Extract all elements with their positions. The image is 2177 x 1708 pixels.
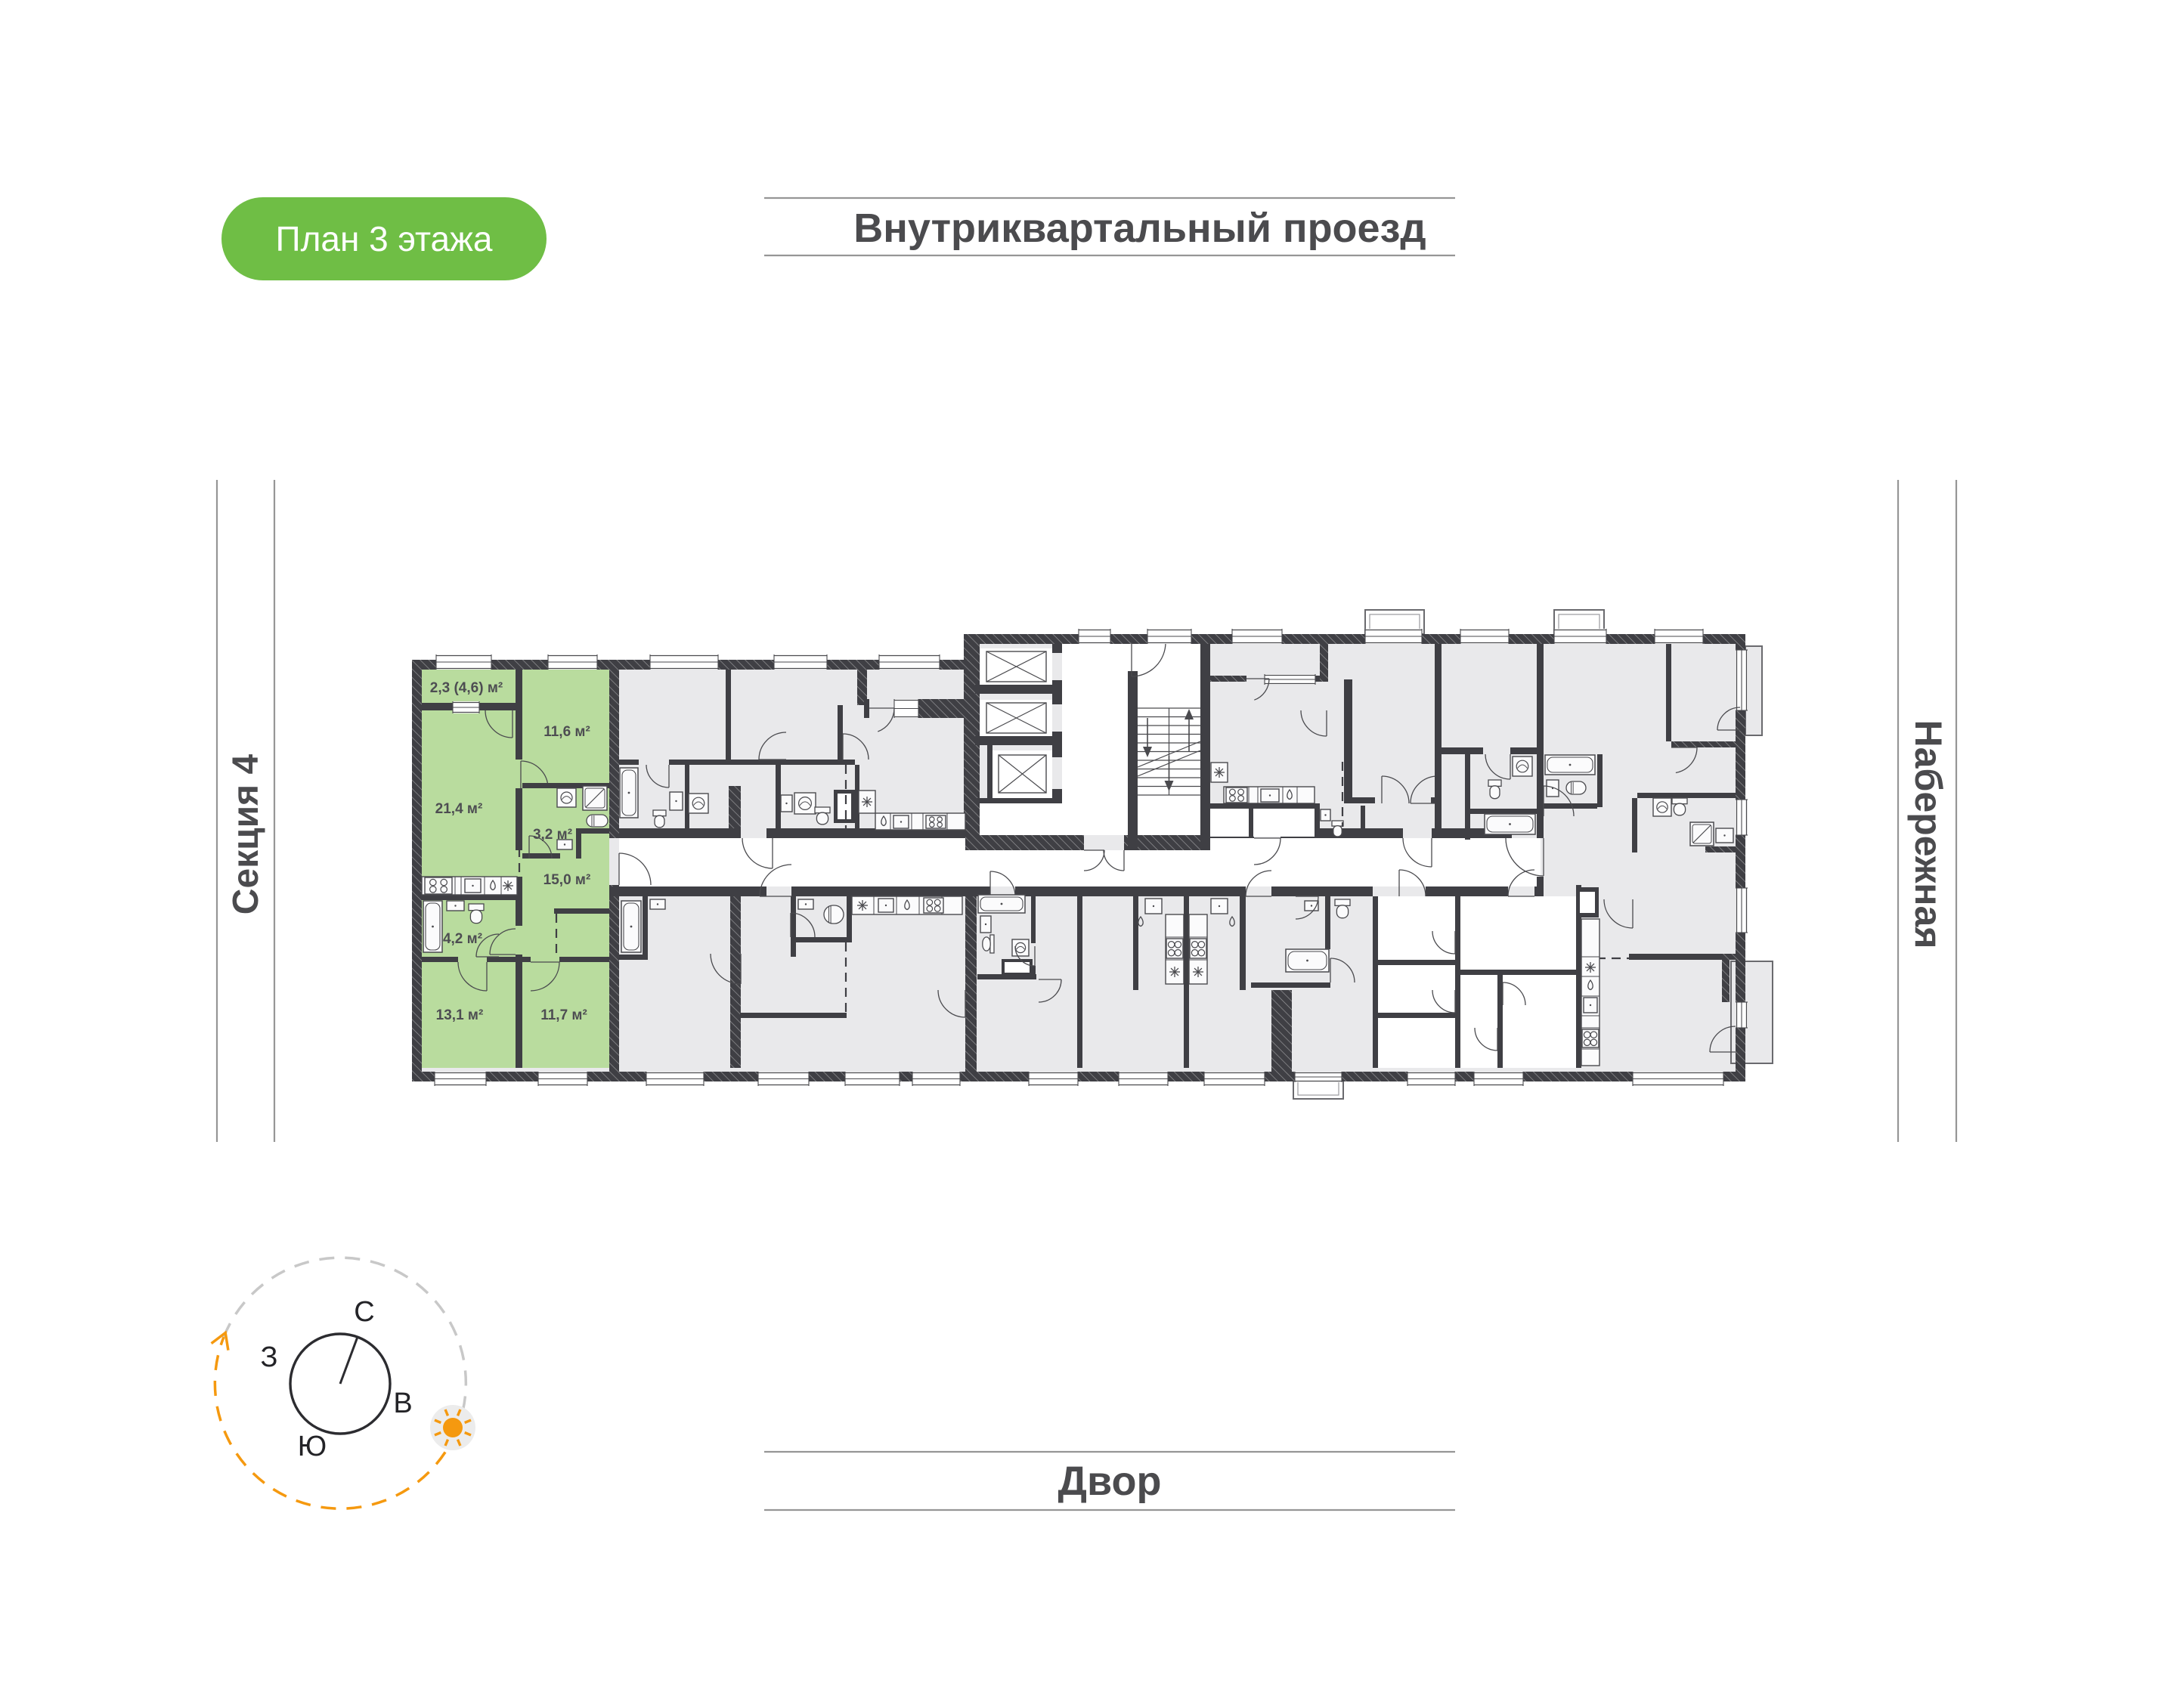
svg-text:13,1 м²: 13,1 м² <box>436 1007 484 1023</box>
svg-text:Ю: Ю <box>298 1431 327 1462</box>
svg-text:11,6 м²: 11,6 м² <box>543 724 590 740</box>
svg-text:4,2 м²: 4,2 м² <box>443 931 482 947</box>
svg-text:План 3 этажа: План 3 этажа <box>276 219 493 258</box>
svg-text:Набережная: Набережная <box>1907 720 1949 949</box>
svg-text:11,7 м²: 11,7 м² <box>540 1007 587 1023</box>
svg-text:3,2 м²: 3,2 м² <box>533 827 572 843</box>
svg-text:21,4 м²: 21,4 м² <box>435 801 483 817</box>
svg-text:Секция 4: Секция 4 <box>226 753 266 914</box>
svg-text:В: В <box>393 1388 412 1419</box>
svg-text:15,0 м²: 15,0 м² <box>543 872 591 888</box>
svg-text:С: С <box>354 1296 374 1328</box>
svg-text:Внутриквартальный проезд: Внутриквартальный проезд <box>853 206 1426 251</box>
svg-text:2,3 (4,6) м²: 2,3 (4,6) м² <box>430 680 503 696</box>
svg-text:З: З <box>261 1341 278 1373</box>
svg-text:Двор: Двор <box>1058 1459 1162 1504</box>
